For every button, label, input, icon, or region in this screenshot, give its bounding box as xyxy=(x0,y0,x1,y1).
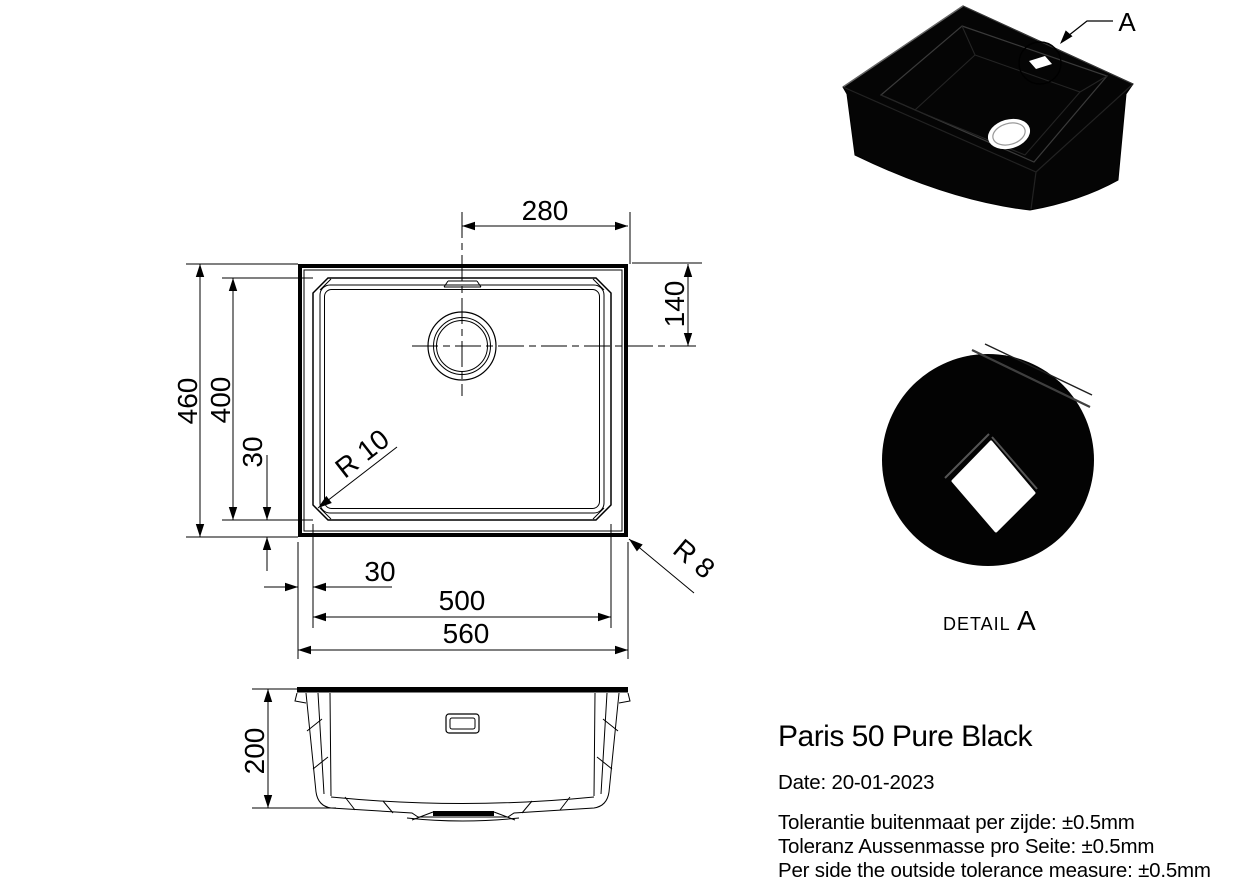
dim-bowl-width-label: 500 xyxy=(439,585,486,616)
technical-drawing-sheet: 280 140 460 400 30 30 500 560 R 10 R 8 xyxy=(0,0,1249,883)
dim-depth-label: 200 xyxy=(239,728,270,775)
radius-bowl-corner-label: R 10 xyxy=(329,423,395,484)
dim-bottom-offset-label: 30 xyxy=(364,556,395,587)
iso-callout-label: A xyxy=(1118,7,1136,37)
drain-centerlines xyxy=(412,212,700,396)
dim-overall-width-label: 560 xyxy=(443,618,490,649)
section-view: 200 xyxy=(239,687,630,821)
dim-side-offset-label: 30 xyxy=(237,436,268,467)
outer-rim-outline xyxy=(300,266,626,535)
detail-view-callout: A xyxy=(1017,605,1036,636)
rim-bar xyxy=(297,687,628,693)
title-block: Paris 50 Pure Black Date: 20-01-2023 Tol… xyxy=(778,720,1211,882)
section-walls xyxy=(306,693,619,796)
product-name: Paris 50 Pure Black xyxy=(778,720,1033,753)
tolerance-line-en: Per side the outside tolerance measure: … xyxy=(778,859,1211,882)
top-view: 280 140 460 400 30 30 500 560 R 10 R 8 xyxy=(172,195,721,659)
iso-view: A xyxy=(843,6,1136,210)
rim-lips xyxy=(295,693,630,703)
tolerance-line-de: Toleranz Aussenmasse pro Seite: ±0.5mm xyxy=(778,835,1154,858)
detail-view-label: DETAIL xyxy=(943,614,1011,634)
section-bottom xyxy=(316,792,609,821)
iso-sink-body xyxy=(843,6,1133,210)
dim-overall-depth-label: 460 xyxy=(172,378,203,425)
outer-rim-inner-line xyxy=(304,270,622,531)
dim-drain-from-top-label: 140 xyxy=(659,281,690,328)
detail-a-view: DETAIL A xyxy=(882,344,1094,636)
drawing-canvas: 280 140 460 400 30 30 500 560 R 10 R 8 xyxy=(0,0,1249,883)
drain-boss xyxy=(433,811,494,816)
date-line: Date: 20-01-2023 xyxy=(778,771,934,794)
radius-outer-corner-label: R 8 xyxy=(667,533,720,585)
tolerance-line-nl: Tolerantie buitenmaat per zijde: ±0.5mm xyxy=(778,811,1135,834)
overflow-slot-section xyxy=(446,714,479,733)
callout-arrow-icon xyxy=(1060,30,1073,44)
dim-bowl-depth-label: 400 xyxy=(205,377,236,424)
callout-a: A xyxy=(1060,7,1136,44)
dim-drain-from-right-label: 280 xyxy=(522,195,569,226)
